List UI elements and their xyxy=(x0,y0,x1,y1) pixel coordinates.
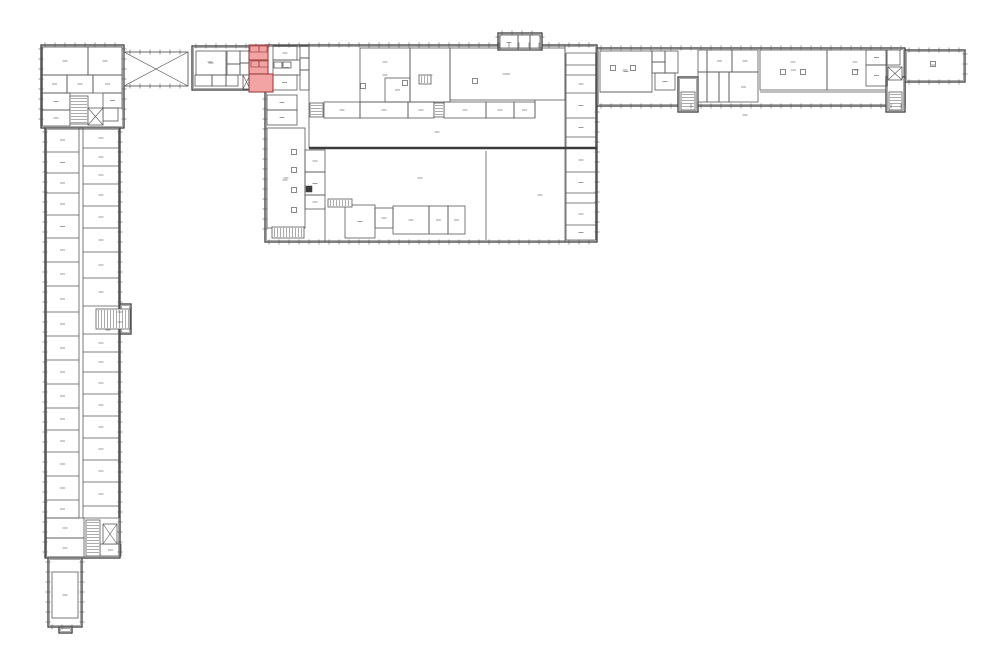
outline-left-wing-main xyxy=(45,128,120,558)
highlighted-room[interactable] xyxy=(249,45,268,60)
outline-left-wing-south-annex xyxy=(48,558,82,627)
filled-square xyxy=(306,186,312,192)
stairs xyxy=(310,103,323,117)
floor-plan-svg xyxy=(0,0,1000,665)
stairs xyxy=(70,96,88,124)
stairs xyxy=(272,227,304,238)
stairs xyxy=(419,75,431,84)
stairs xyxy=(434,103,444,117)
highlighted-room[interactable] xyxy=(249,74,273,92)
floor-plan-canvas xyxy=(0,0,1000,665)
outline-east-wing xyxy=(597,48,905,106)
stairs xyxy=(96,309,130,329)
outline-south-annex-stub xyxy=(59,627,72,633)
outline-north-annex xyxy=(498,33,542,50)
outline-east-wing-extension xyxy=(905,50,965,82)
